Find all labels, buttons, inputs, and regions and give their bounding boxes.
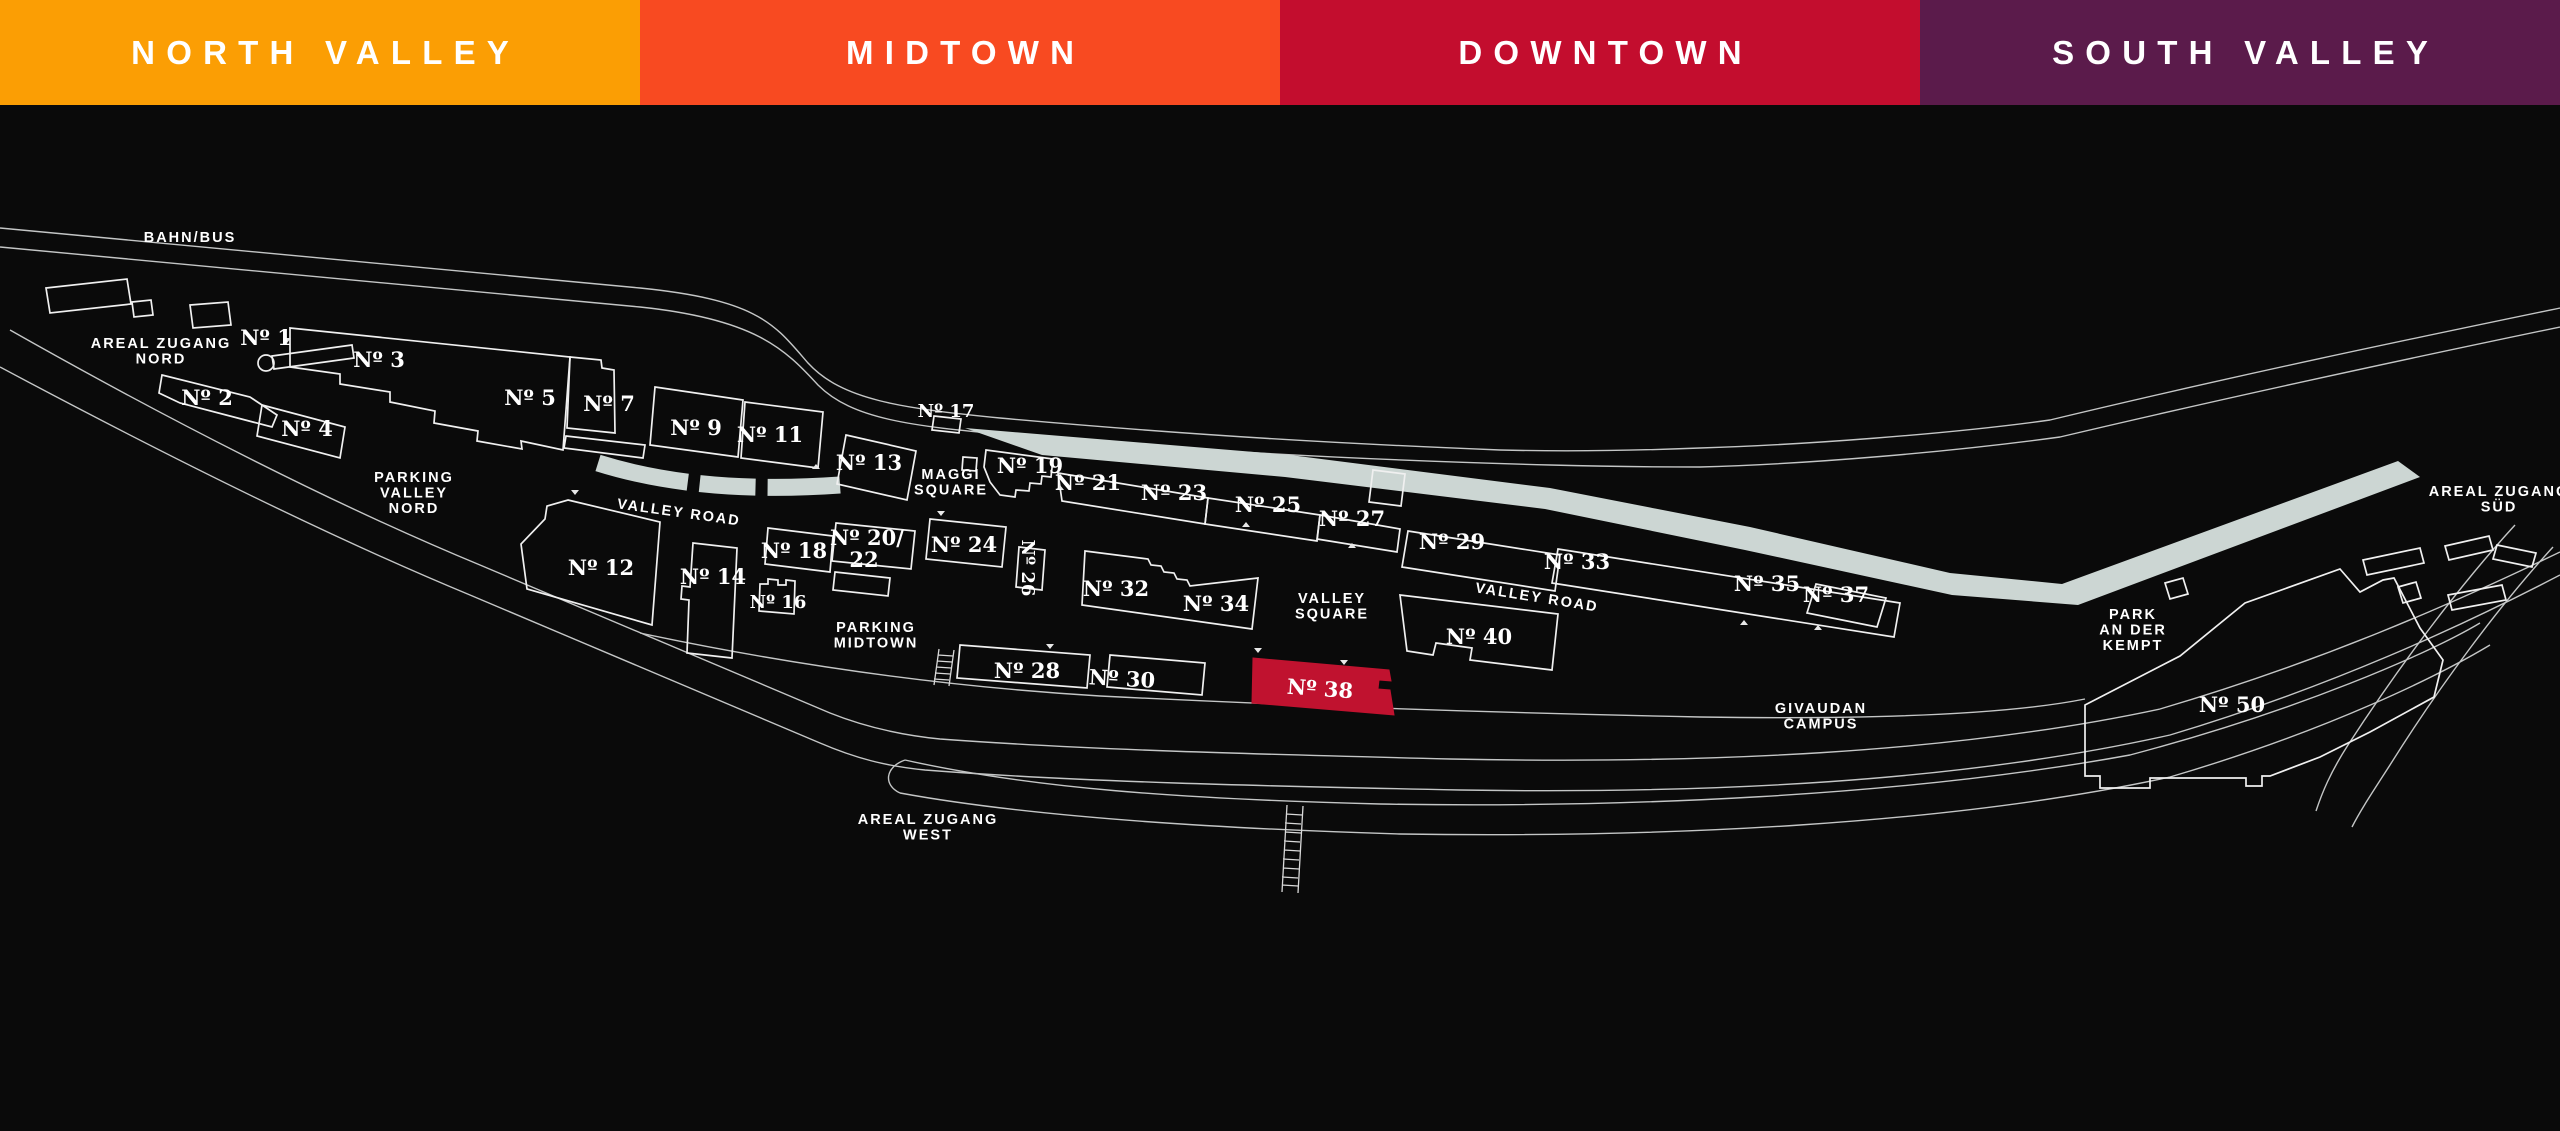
district-label: NORTH VALLEY: [120, 34, 520, 72]
area-label-line: VALLEY: [1298, 591, 1366, 607]
district-label: DOWNTOWN: [1447, 34, 1753, 72]
area-label-line: VALLEY: [380, 486, 448, 502]
district-label: MIDTOWN: [835, 34, 1085, 72]
building-label-n3[interactable]: Nº 3: [353, 347, 405, 372]
building-label-n5[interactable]: Nº 5: [504, 385, 556, 410]
building-outlines[interactable]: [46, 279, 2536, 788]
building-label-n25[interactable]: Nº 25: [1235, 492, 1301, 517]
area-label-line: AREAL ZUGANG: [2429, 484, 2560, 500]
area-label-line: WEST: [903, 828, 953, 844]
area-label-line: AREAL ZUGANG: [858, 812, 999, 828]
area-label-line: CAMPUS: [1784, 717, 1859, 733]
building-label-n9[interactable]: Nº 9: [670, 415, 722, 440]
area-label-parking-midtown: PARKINGMIDTOWN: [834, 620, 919, 652]
area-label-line: SQUARE: [1295, 607, 1369, 623]
building-label-n37[interactable]: Nº 37: [1803, 582, 1869, 607]
building-label-n4[interactable]: Nº 4: [281, 416, 333, 441]
site-map: Nº 1Nº 2Nº 3Nº 4Nº 5Nº 7Nº 9Nº 11Nº 12Nº…: [0, 105, 2560, 1131]
building-label-n33[interactable]: Nº 33: [1544, 549, 1610, 574]
area-label-line: SÜD: [2481, 499, 2518, 516]
building-label-n40[interactable]: Nº 40: [1446, 624, 1512, 649]
building-label-n24[interactable]: Nº 24: [931, 532, 997, 557]
area-label-line: VALLEY ROAD: [1474, 580, 1600, 615]
building-label-n34[interactable]: Nº 34: [1183, 591, 1249, 616]
district-tab-south-valley[interactable]: SOUTH VALLEY: [1920, 0, 2560, 105]
building-label-n28[interactable]: Nº 28: [994, 658, 1060, 683]
area-label-line: KEMPT: [2103, 638, 2164, 654]
area-label-valley-road-east: VALLEY ROAD: [1474, 580, 1600, 615]
district-tab-north-valley[interactable]: NORTH VALLEY: [0, 0, 640, 105]
area-label-line: NORD: [136, 352, 187, 368]
district-tab-downtown[interactable]: DOWNTOWN: [1280, 0, 1920, 105]
building-label-n16[interactable]: Nº 16: [750, 592, 807, 613]
area-label-parking-valley-nord: PARKINGVALLEYNORD: [374, 470, 454, 517]
area-label-line: PARK: [2109, 607, 2157, 623]
area-label-line: MAGGI: [921, 467, 980, 483]
building-label-n38[interactable]: Nº 38: [1286, 674, 1354, 704]
area-label-line: SQUARE: [914, 483, 988, 499]
area-label-line: GIVAUDAN: [1775, 701, 1867, 717]
building-label-n32[interactable]: Nº 32: [1083, 576, 1149, 601]
area-label-line: PARKING: [836, 620, 916, 636]
district-label: SOUTH VALLEY: [2041, 34, 2439, 72]
building-label-n30[interactable]: Nº 30: [1088, 664, 1155, 692]
perimeter-roads: [0, 330, 2560, 835]
building-label-n13[interactable]: Nº 13: [836, 450, 902, 475]
building-label-n2[interactable]: Nº 2: [181, 385, 233, 410]
building-label-n29[interactable]: Nº 29: [1419, 529, 1485, 554]
area-label-bahn-bus: BAHN/BUS: [144, 230, 237, 246]
building-label-n35[interactable]: Nº 35: [1734, 571, 1800, 596]
area-label-line: AREAL ZUGANG: [91, 336, 232, 352]
building-label-n50[interactable]: Nº 50: [2199, 692, 2265, 717]
area-label-line: BAHN/BUS: [144, 230, 237, 246]
building-label-n7[interactable]: Nº 7: [583, 391, 635, 416]
area-label-valley-road-west: VALLEY ROAD: [616, 496, 742, 529]
area-label-maggi-square: MAGGISQUARE: [914, 467, 988, 499]
building-label-n22[interactable]: 22: [849, 547, 878, 572]
building-label-n21[interactable]: Nº 21: [1055, 470, 1121, 495]
area-label-areal-zugang-nord: AREAL ZUGANGNORD: [91, 336, 232, 368]
area-label-areal-zugang-west: AREAL ZUGANGWEST: [858, 812, 999, 844]
area-label-line: MIDTOWN: [834, 636, 919, 652]
building-label-n1[interactable]: Nº 1: [240, 325, 292, 350]
area-label-line: VALLEY ROAD: [616, 496, 742, 529]
area-label-park-an-der-kempt: PARKAN DERKEMPT: [2099, 607, 2167, 654]
building-label-n27[interactable]: Nº 27: [1319, 506, 1385, 531]
building-label-n17[interactable]: Nº 17: [918, 401, 975, 422]
district-header: NORTH VALLEY MIDTOWN DOWNTOWN SOUTH VALL…: [0, 0, 2560, 105]
area-label-line: NORD: [389, 501, 440, 517]
district-tab-midtown[interactable]: MIDTOWN: [640, 0, 1280, 105]
building-label-n11[interactable]: Nº 11: [737, 422, 803, 447]
building-label-n18[interactable]: Nº 18: [761, 538, 827, 563]
building-label-n14[interactable]: Nº 14: [680, 564, 746, 589]
building-label-n19[interactable]: Nº 19: [997, 453, 1063, 478]
area-label-givaudan-campus: GIVAUDANCAMPUS: [1775, 701, 1867, 733]
area-label-line: AN DER: [2099, 623, 2167, 639]
area-label-line: PARKING: [374, 470, 454, 486]
area-label-areal-zugang-sued: AREAL ZUGANGSÜD: [2429, 484, 2560, 516]
area-label-valley-square: VALLEYSQUARE: [1295, 591, 1369, 623]
building-label-n23[interactable]: Nº 23: [1141, 480, 1207, 505]
building-label-n12[interactable]: Nº 12: [568, 555, 634, 580]
building-label-n26[interactable]: Nº 26: [1017, 540, 1038, 597]
